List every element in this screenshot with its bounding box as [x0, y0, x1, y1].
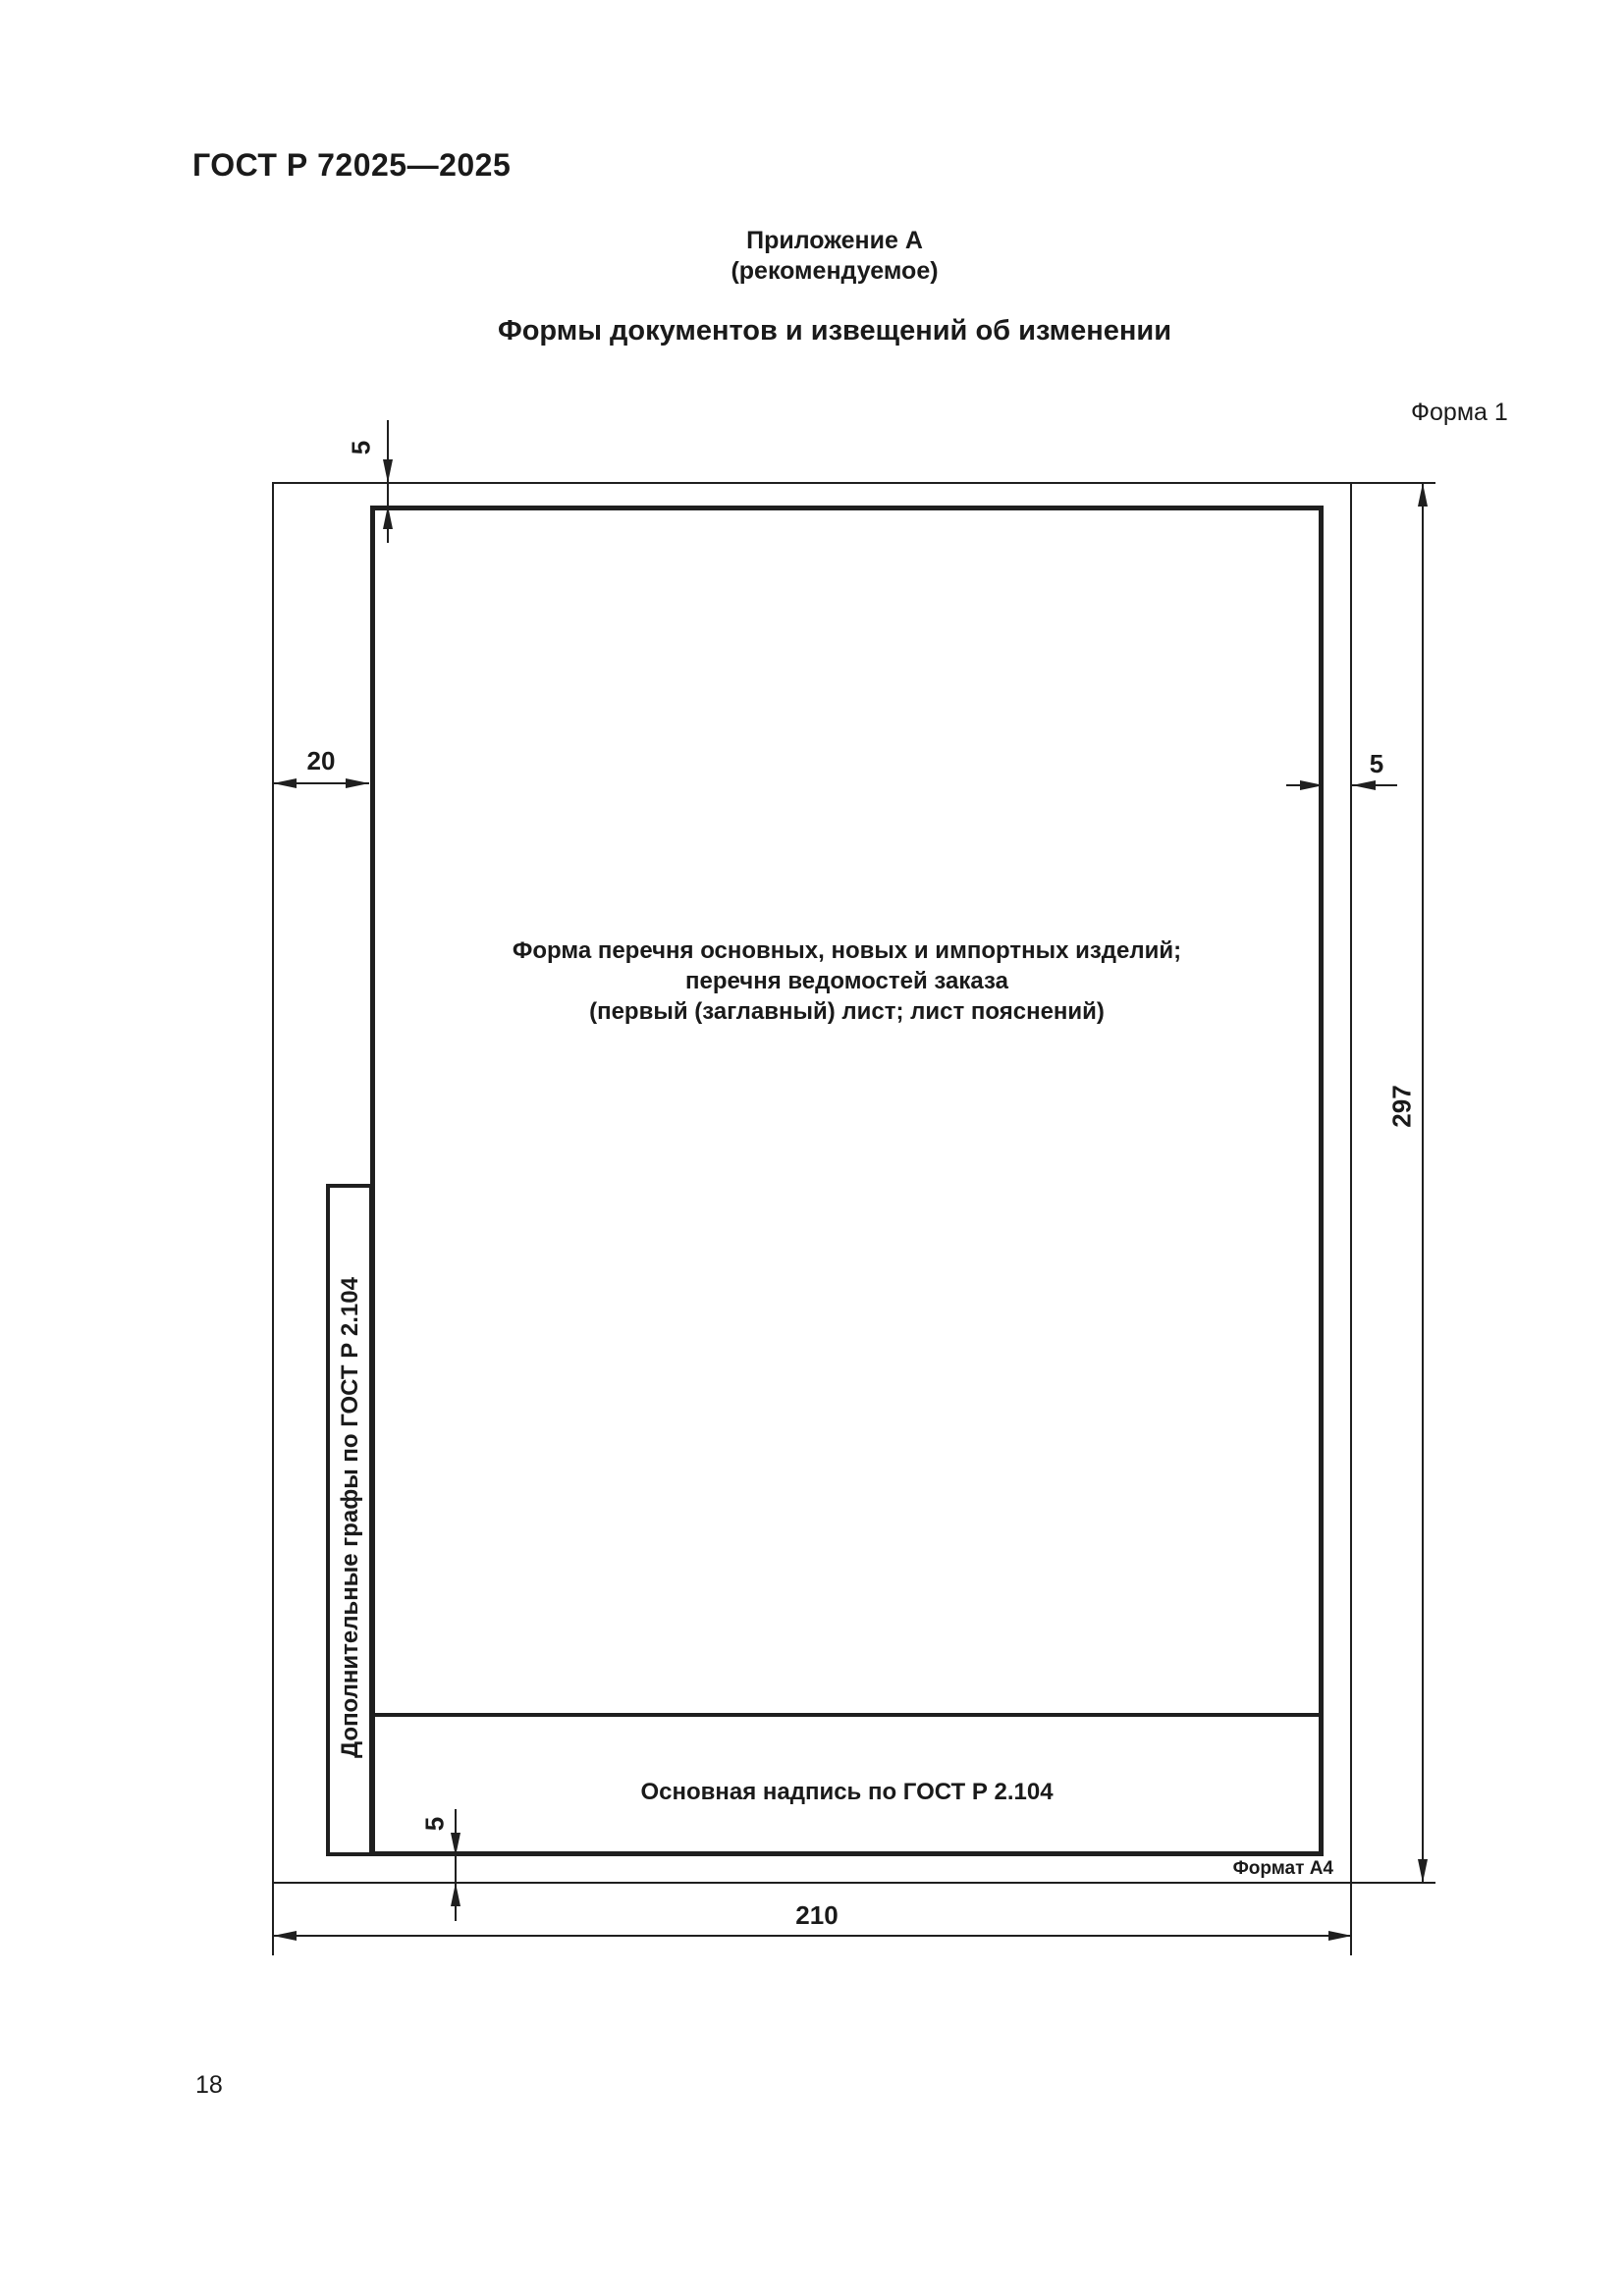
dimension-left-margin: 20 [307, 746, 336, 776]
dimension-bottom-margin: 5 [420, 1817, 451, 1831]
arrowhead-icon [1418, 483, 1428, 507]
extension-line-bottom-left-down [272, 1884, 274, 1955]
dimension-top-margin: 5 [347, 441, 377, 454]
arrowhead-icon [383, 506, 393, 529]
arrowhead-icon [346, 778, 369, 788]
arrowhead-icon [451, 1883, 460, 1906]
dimension-right-margin: 5 [1370, 749, 1383, 779]
dimension-line-sheet-width [274, 1935, 1352, 1937]
arrowhead-icon [273, 1931, 297, 1941]
sheet-description-line3: (первый (заглавный) лист; лист пояснений… [370, 996, 1324, 1027]
dimension-sheet-width: 210 [795, 1900, 838, 1931]
arrowhead-icon [383, 459, 393, 483]
arrowhead-icon [451, 1833, 460, 1856]
sheet-description: Форма перечня основных, новых и импортны… [370, 935, 1324, 1027]
sheet-description-line1: Форма перечня основных, новых и импортны… [370, 935, 1324, 966]
format-label: Формат А4 [1029, 1858, 1333, 1880]
extension-line-bottom-right-down [1350, 1884, 1352, 1955]
inner-frame [370, 506, 1324, 1856]
title-block-label: Основная надпись по ГОСТ Р 2.104 [370, 1779, 1324, 1806]
arrowhead-icon [1328, 1931, 1352, 1941]
title-block-divider [370, 1713, 1324, 1717]
arrowhead-icon [1418, 1859, 1428, 1883]
dimension-sheet-height: 297 [1387, 1085, 1418, 1127]
form-diagram: Форма перечня основных, новых и импортны… [0, 0, 1624, 2296]
sheet-description-line2: перечня ведомостей заказа [370, 966, 1324, 996]
page-number: 18 [195, 2071, 223, 2100]
document-page: ГОСТ Р 72025—2025 Приложение А (рекоменд… [0, 0, 1624, 2296]
arrowhead-icon [1352, 780, 1376, 790]
arrowhead-icon [273, 778, 297, 788]
arrowhead-icon [1300, 780, 1324, 790]
dimension-line-sheet-height [1422, 483, 1424, 1883]
side-column-label: Дополнительные графы по ГОСТ Р 2.104 [337, 1277, 364, 1758]
